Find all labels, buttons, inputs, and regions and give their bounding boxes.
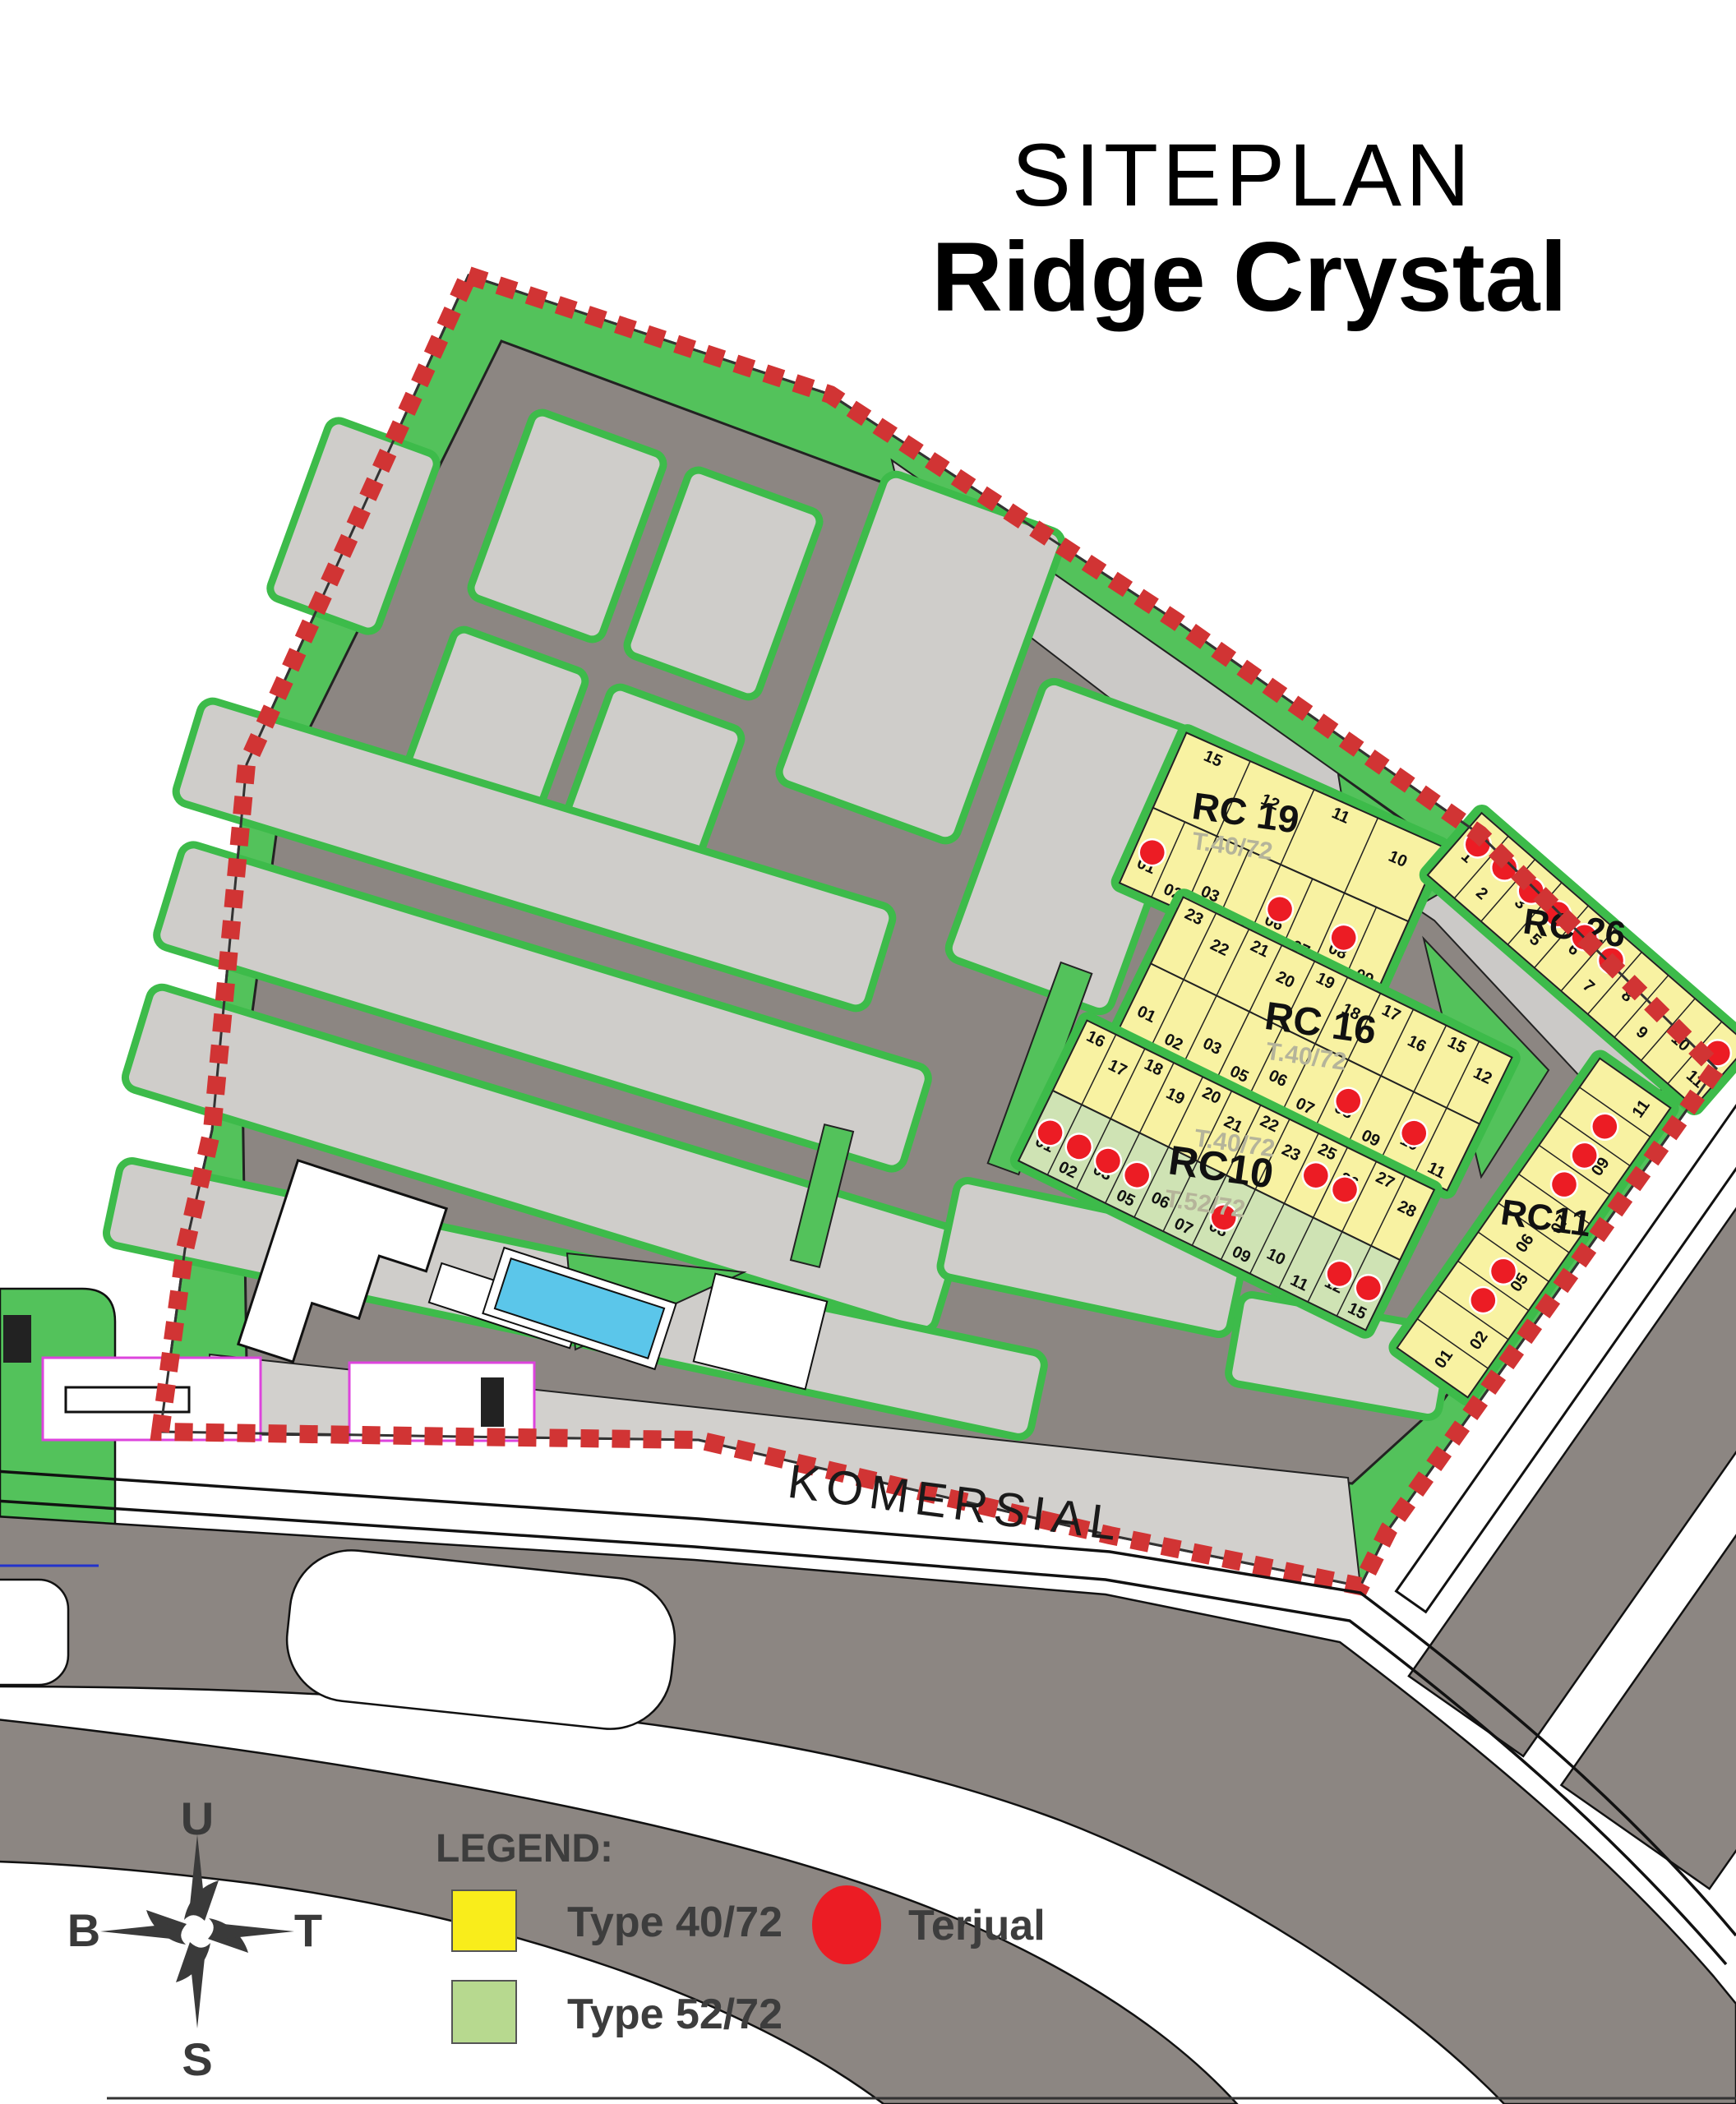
- gate-structure-icon: [481, 1377, 504, 1427]
- compass-label-south: S: [182, 2033, 212, 2085]
- compass-label-east: T: [294, 1904, 322, 1956]
- legend-sold-icon: [812, 1885, 881, 1964]
- legend-swatch-type-52-72: [452, 1981, 516, 2043]
- compass-label-north: U: [181, 1793, 214, 1844]
- road-median-island: [0, 1580, 68, 1685]
- legend-label-terjual: Terjual: [908, 1902, 1046, 1949]
- legend-label-type-40-72: Type 40/72: [567, 1899, 783, 1946]
- page-subtitle: Ridge Crystal: [931, 222, 1567, 332]
- legend-swatch-type-40-72: [452, 1890, 516, 1951]
- siteplan-canvas: 151211100102030506070809RC 19T.40/722322…: [0, 0, 1736, 2104]
- legend-heading: LEGEND:: [436, 1827, 613, 1871]
- compass-label-west: B: [67, 1904, 100, 1956]
- page-title: SITEPLAN: [1012, 125, 1474, 224]
- gate-plaza-west: [43, 1358, 261, 1440]
- legend-label-type-52-72: Type 52/72: [567, 1991, 783, 2038]
- gate-structure-icon: [3, 1315, 31, 1363]
- title-block: SITEPLAN Ridge Crystal: [931, 125, 1567, 332]
